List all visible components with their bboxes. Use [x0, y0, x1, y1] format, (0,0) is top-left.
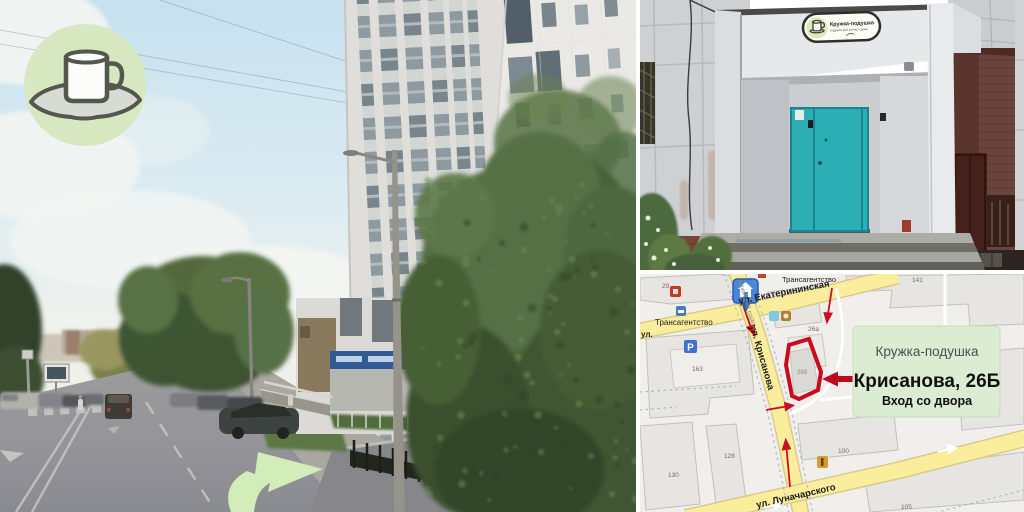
svg-text:141: 141 [912, 277, 923, 284]
svg-text:Трансагентство: Трансагентство [655, 318, 713, 327]
svg-text:26а: 26а [808, 326, 819, 333]
svg-text:128: 128 [724, 453, 735, 460]
svg-text:130: 130 [668, 472, 679, 479]
svg-text:ул.: ул. [641, 330, 653, 339]
svg-text:Трансагентство: Трансагентство [782, 275, 836, 284]
svg-text:Крисанова, 26Б: Крисанова, 26Б [854, 371, 1001, 392]
svg-text:P: P [687, 343, 694, 354]
svg-text:29: 29 [662, 283, 670, 290]
svg-text:105: 105 [901, 504, 912, 511]
svg-text:100: 100 [838, 448, 849, 455]
svg-text:26б: 26б [797, 370, 808, 376]
svg-text:Кружка-подушка: Кружка-подушка [875, 344, 979, 359]
svg-text:163: 163 [692, 366, 703, 373]
svg-text:Вход со двора: Вход со двора [882, 394, 973, 408]
